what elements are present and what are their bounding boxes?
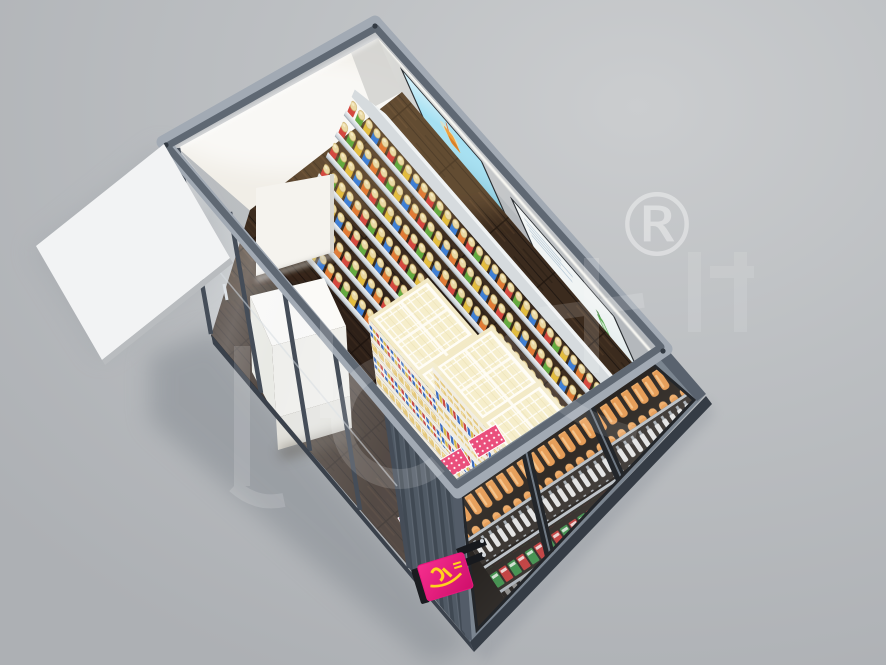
bracket-bolt [480, 539, 484, 543]
registered-trademark-watermark: ® [613, 174, 701, 277]
render-stage: ® [0, 0, 886, 665]
container-store-render: ® [0, 0, 886, 665]
corner-screw [372, 23, 377, 28]
corner-screw [660, 348, 665, 353]
bracket-bolt [482, 553, 486, 557]
